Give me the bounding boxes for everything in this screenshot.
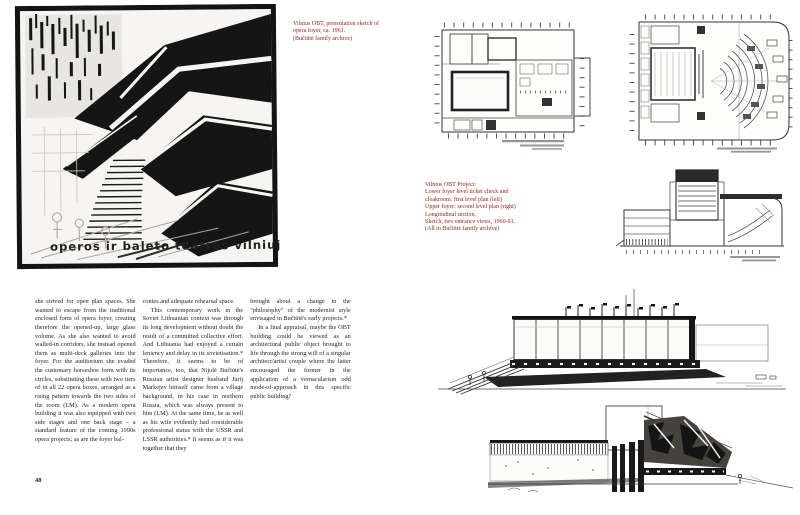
foyer-sketch-image: operos ir baleto teatras vilniuje [14,4,280,270]
main-hall [452,72,508,110]
page-number: 48 [35,477,42,484]
caption-line: opera foyer, ca. 1961. [293,28,413,35]
left-caption: Vilnius OBT, presentation sketch of oper… [293,21,413,43]
caption-line: (All in Bučiūtė family archive) [425,226,575,233]
caption-line: (Bučiūtė family archive) [293,36,413,43]
paragraph: she strived for open plan spaces. She wa… [35,298,136,445]
text-column-2: conies and adequate rehearsal space. Thi… [143,298,244,453]
caption-line: Upper foyer: second level plan (right) [425,204,575,211]
text-column-3: brought about a change in the "philosoph… [250,298,351,453]
rear-sketch-image [488,396,800,508]
right-caption: Vilnius OBT Project: Lower foyer level t… [425,182,575,234]
book-spread: { "spread": { "colors": { "caption_red":… [0,0,800,515]
paragraph: This contemporary work in the Soviet Lit… [143,307,244,454]
glass-facade [514,320,694,360]
paragraph: In a final appraisal, maybe the OBT buil… [250,324,351,402]
section-titleblock-lines [730,256,780,258]
paragraph: conies and adequate rehearsal space. [143,298,244,307]
longitudinal-section-image [612,160,792,265]
paragraph: brought about a change in the "philosoph… [250,298,351,324]
foyer-sketch-svg: operos ir baleto teatras vilniuje [14,4,280,270]
plan-titleblock-lines [717,148,777,150]
exterior-sketch-image [426,287,798,402]
mural-wall [644,416,732,468]
caption-line: Longitudinal section. [425,212,575,219]
body-text: she strived for open plan spaces. She wa… [35,298,351,453]
first-level-plan-image [424,12,609,152]
plan-titleblock-lines [502,140,564,142]
plaza-pool [484,369,726,387]
figure [738,474,741,484]
artwork-inscription: operos ir baleto teatras vilniuje [50,238,280,254]
text-column-1: she strived for open plan spaces. She wa… [35,298,136,453]
second-level-plan-image [617,6,799,154]
caption-line: Lower foyer level ticket check and [425,189,575,196]
